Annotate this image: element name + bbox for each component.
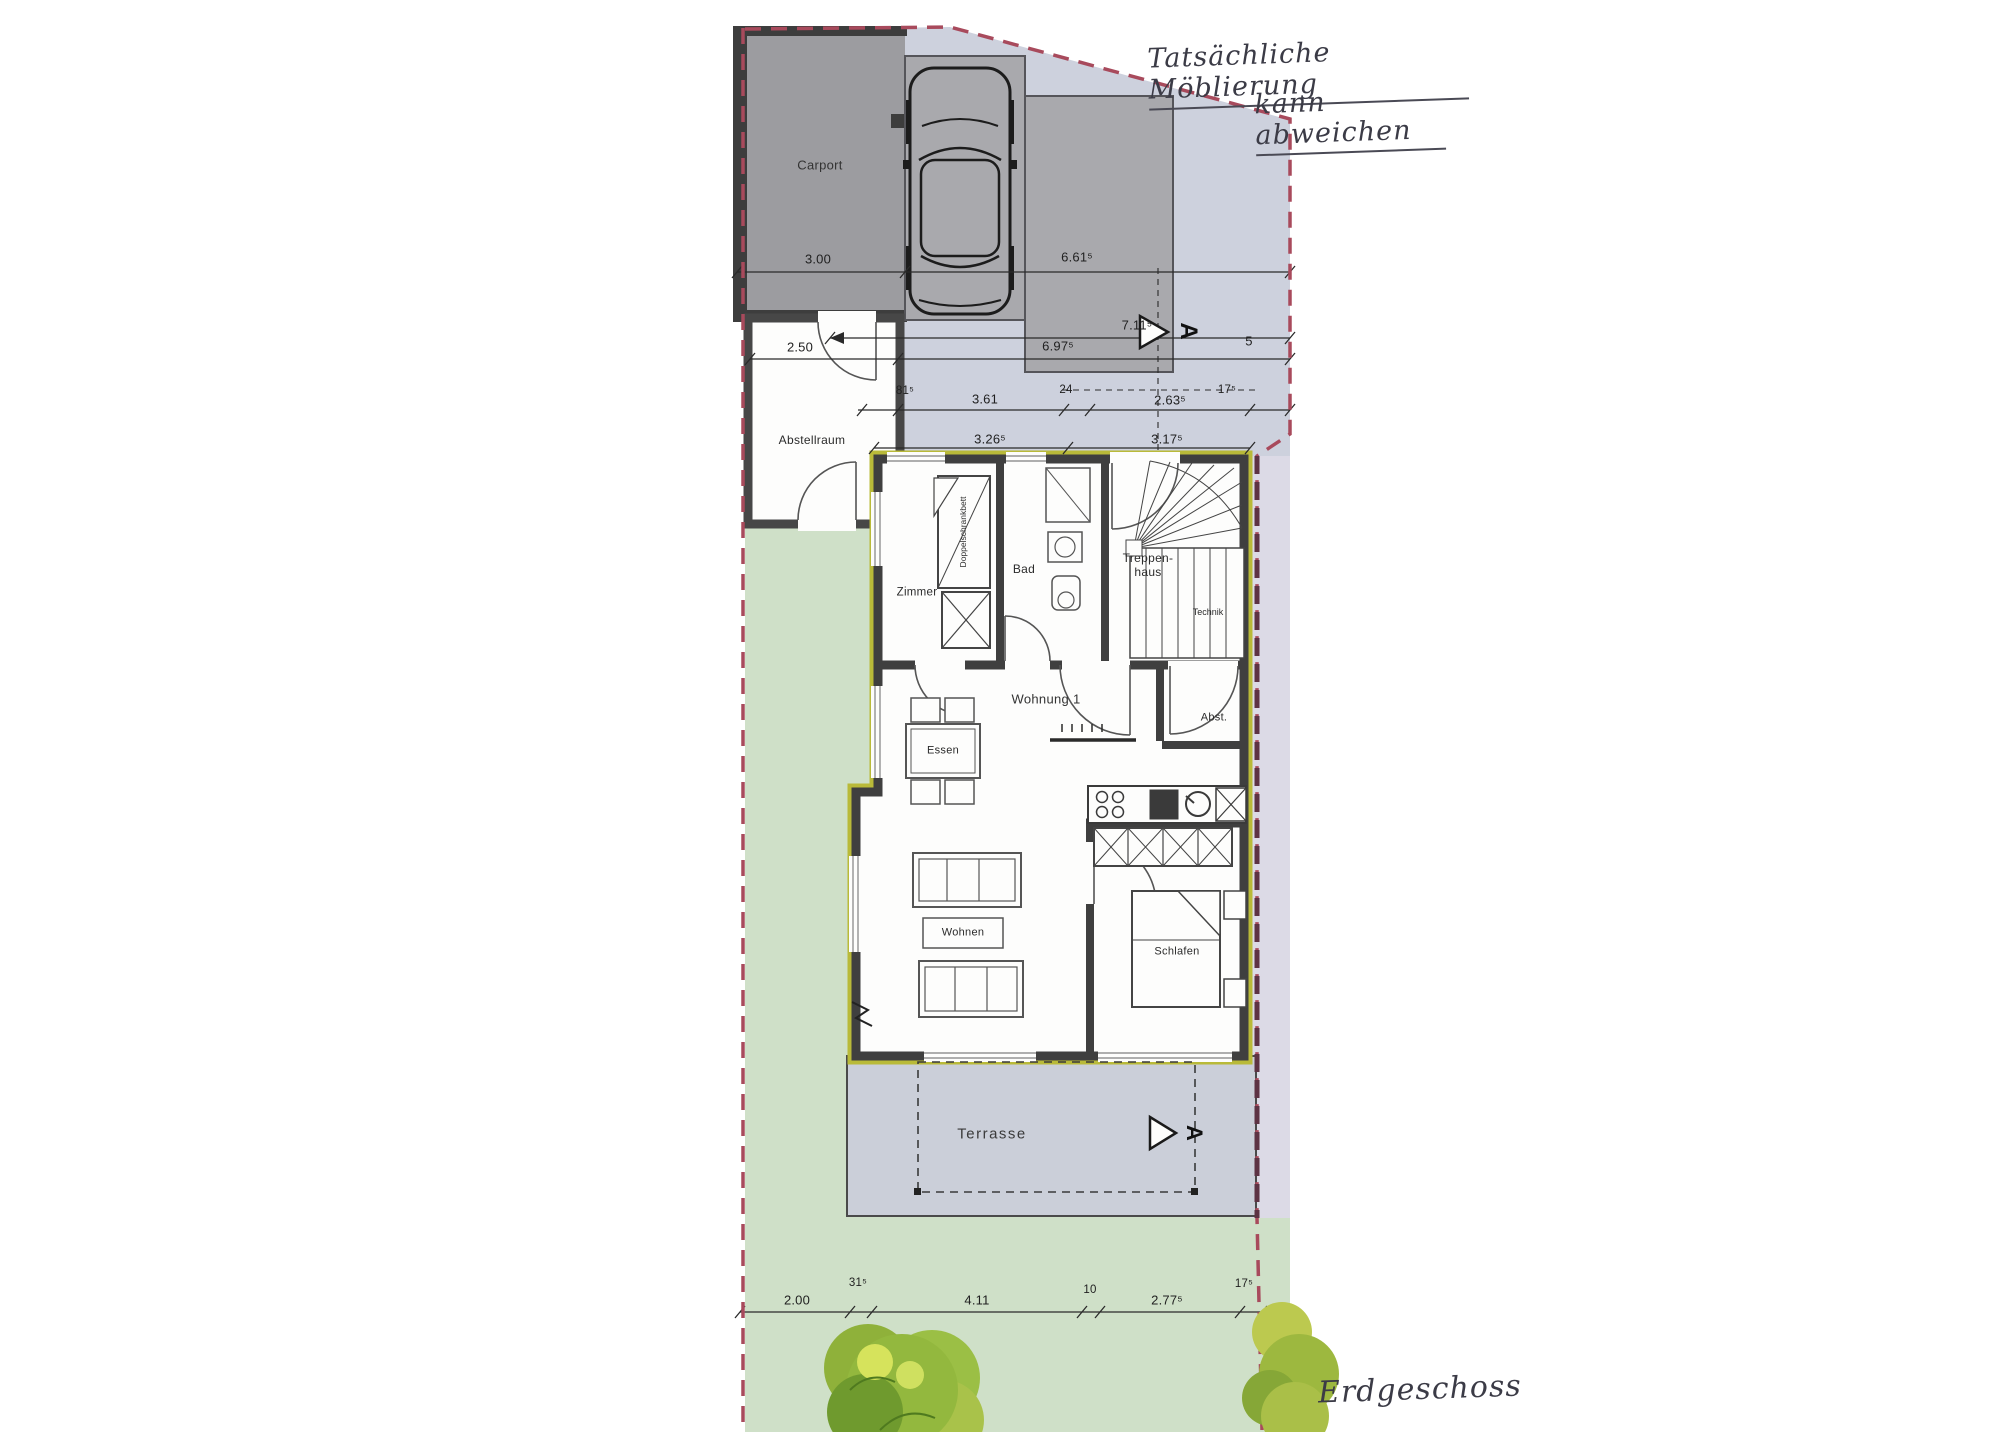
wardrobe-row — [1094, 828, 1232, 866]
wohnung1-label: Wohnung 1 — [1012, 693, 1081, 708]
kitchen-unit — [1088, 786, 1246, 823]
dim-361: 3.61 — [972, 392, 998, 407]
dim-326: 3.26⁵ — [974, 432, 1006, 447]
carport-structure — [733, 26, 907, 322]
section-marker-a-top: A — [1174, 322, 1202, 339]
dim-total-697: 6.97⁵ — [1042, 339, 1074, 354]
dim-17-top: 17⁵ — [1218, 384, 1236, 396]
dim-10: 10 — [1083, 1284, 1096, 1296]
dim-gap-5: 5 — [1245, 334, 1252, 349]
dim-277: 2.77⁵ — [1151, 1293, 1183, 1308]
essen-label: Essen — [927, 745, 959, 758]
carport-label: Carport — [797, 159, 842, 174]
floor-plan-canvas: Carport Abstellraum Zimmer Bad Treppen- … — [0, 0, 2000, 1432]
schrankbett-label: Doppelschrankbett — [959, 497, 969, 568]
dim-200: 2.00 — [784, 1293, 810, 1308]
dim-carport-width: 3.00 — [805, 252, 831, 267]
terrasse-label: Terrasse — [957, 1125, 1027, 1142]
dim-31: 31⁵ — [849, 1277, 867, 1289]
treppenhaus-label: Treppen- haus — [1123, 552, 1174, 580]
handwritten-disclaimer-line2: kann abweichen — [1254, 83, 1446, 157]
abstellraum-label: Abstellraum — [779, 434, 846, 448]
abst-door-gap — [1168, 661, 1238, 670]
tree-icon-large — [824, 1324, 984, 1432]
dim-317: 3.17⁵ — [1151, 432, 1183, 447]
abst-label: Abst. — [1201, 712, 1228, 725]
floor-title: Erdgeschoss — [1317, 1368, 1522, 1413]
bad-label: Bad — [1013, 563, 1035, 577]
dim-24: 24 — [1059, 384, 1072, 396]
zimmer-label: Zimmer — [897, 586, 938, 599]
floor-plan-drawing — [0, 0, 2000, 1432]
dim-81: 81⁵ — [896, 385, 914, 397]
dim-drive-width: 6.61⁵ — [1061, 250, 1093, 265]
dim-17-bottom: 17⁵ — [1235, 1278, 1253, 1290]
dim-abstell-width: 2.50 — [787, 340, 813, 355]
dim-263: 2.63⁵ — [1154, 393, 1186, 408]
technik-label: Technik — [1193, 607, 1224, 617]
section-marker-a-terrace: A — [1181, 1125, 1207, 1141]
car-icon — [903, 68, 1017, 314]
dim-total-711: 7.11⁵ — [1122, 318, 1153, 333]
schlafen-label: Schlafen — [1154, 946, 1199, 959]
dim-411: 4.11 — [964, 1293, 989, 1308]
wohnen-label: Wohnen — [942, 927, 985, 940]
